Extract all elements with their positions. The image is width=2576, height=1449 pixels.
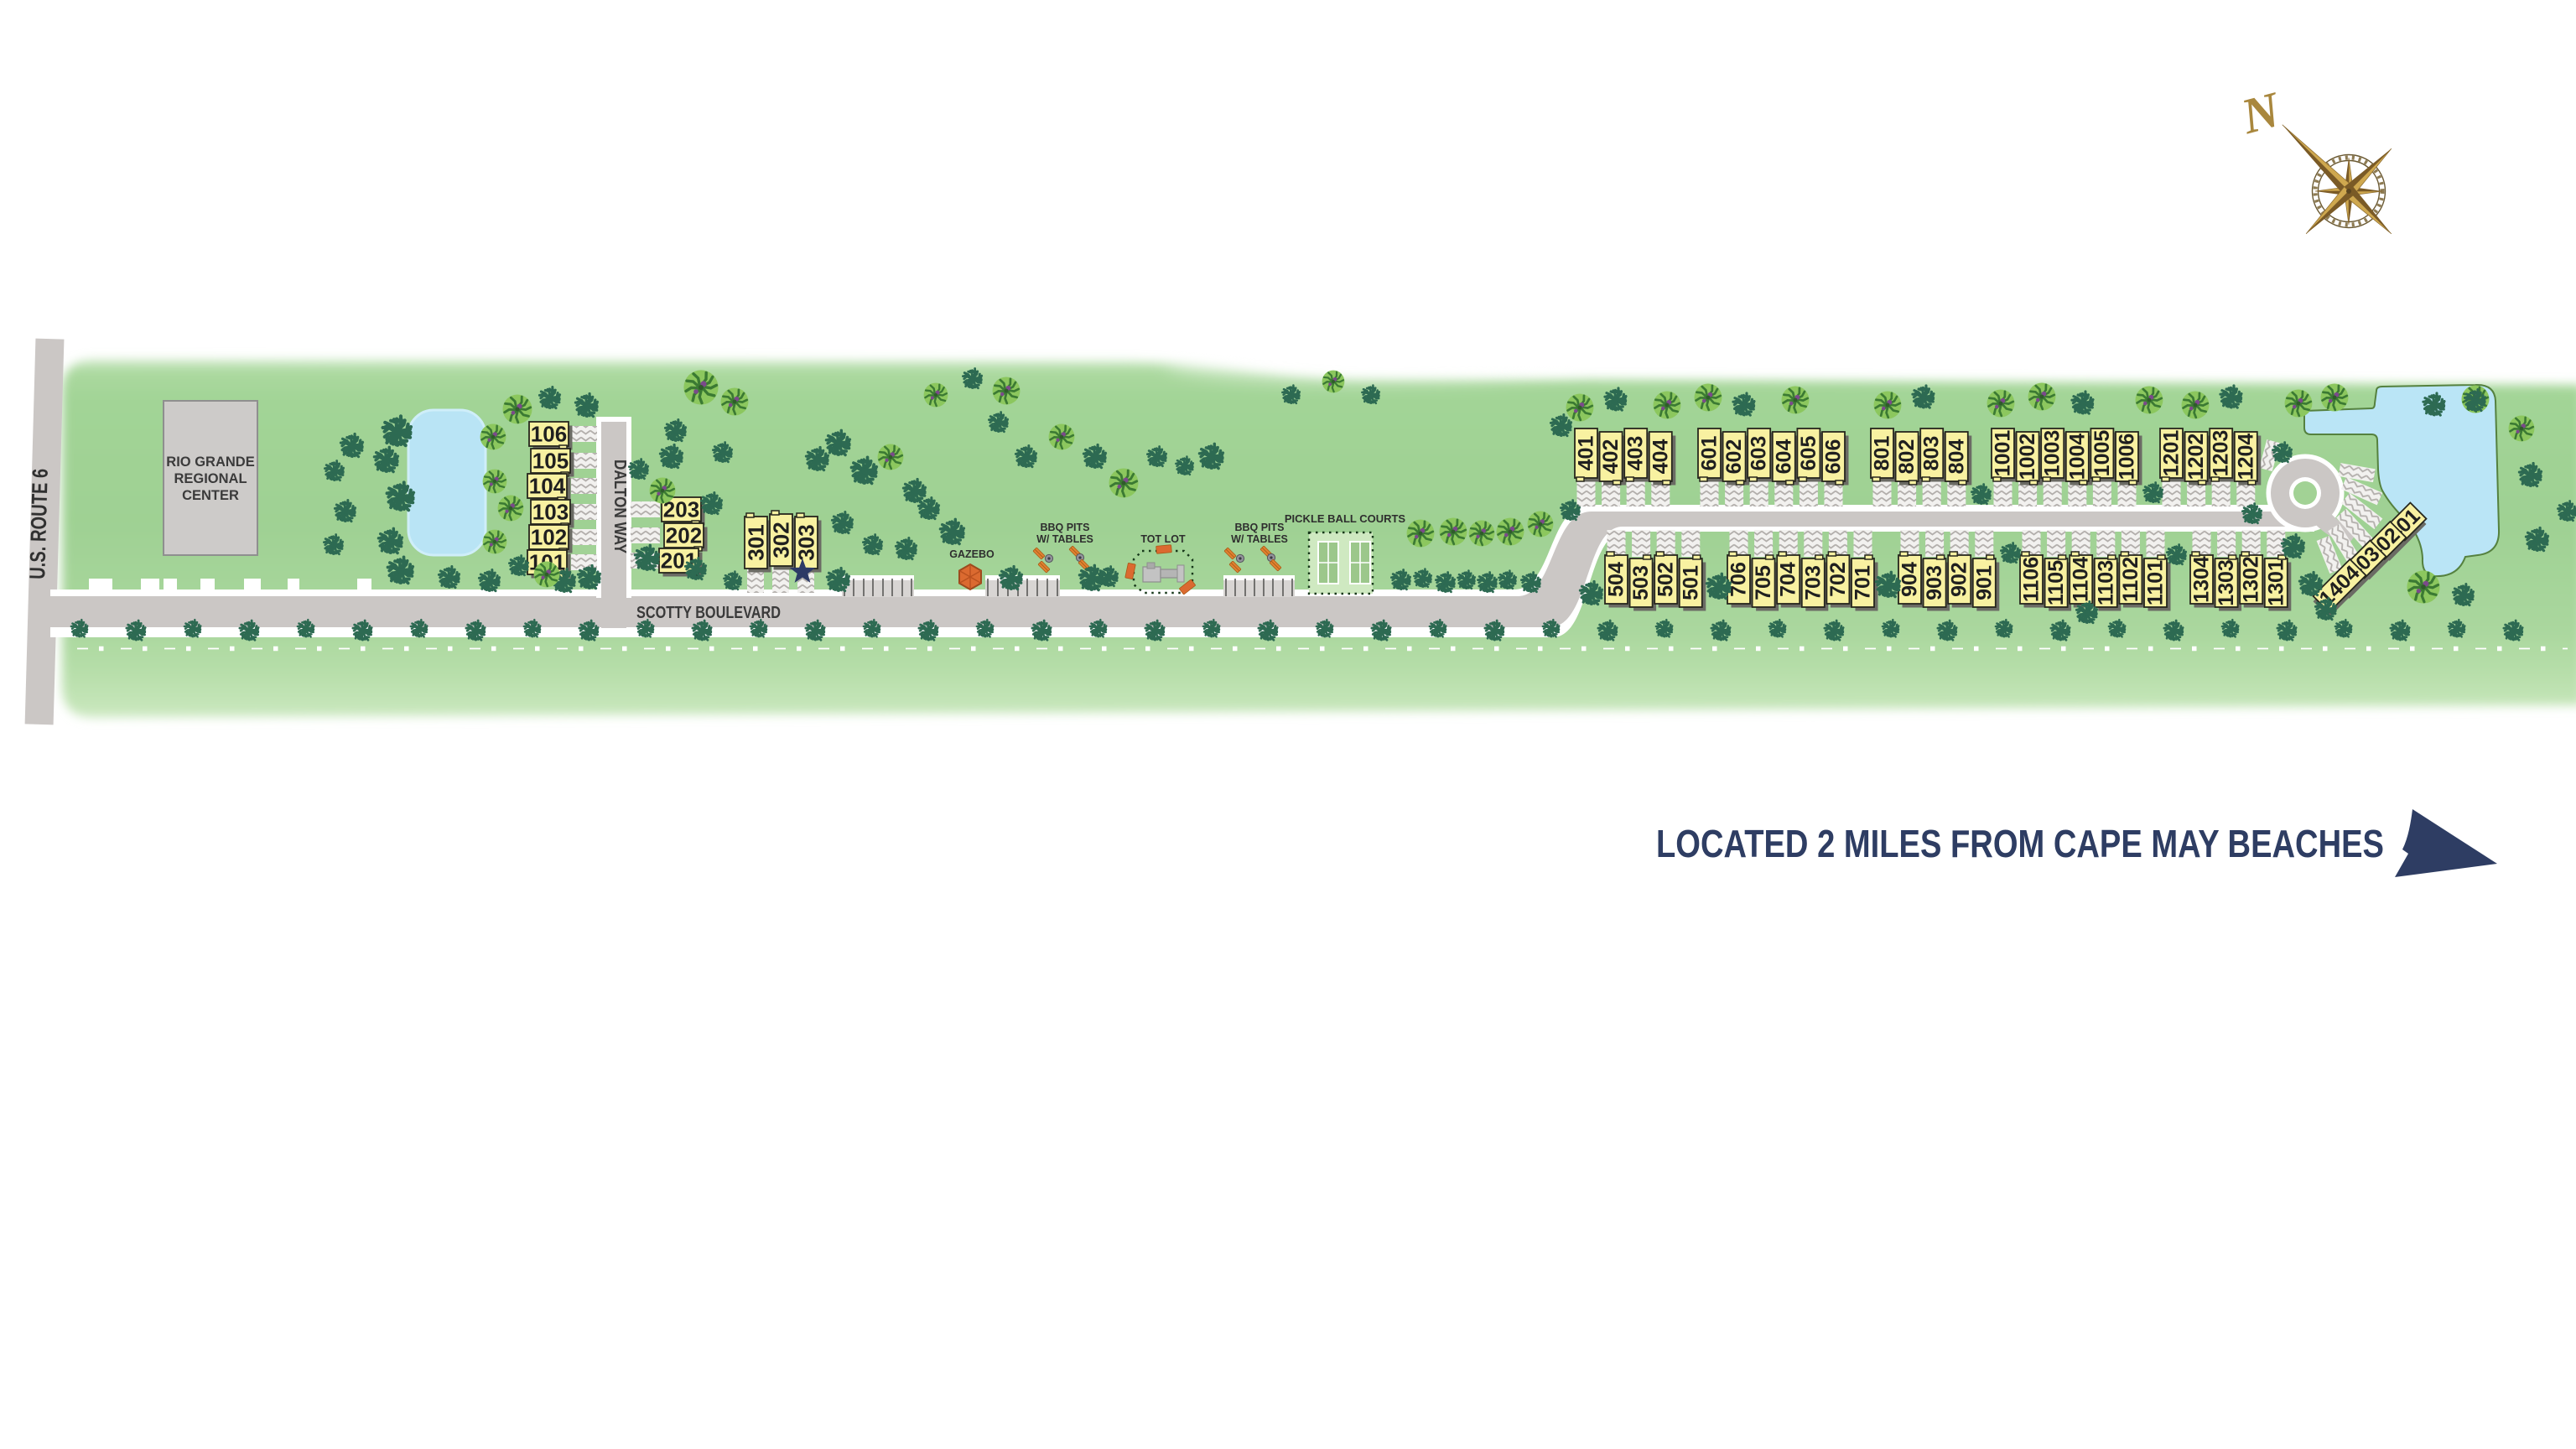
svg-text:802: 802 (1895, 439, 1919, 475)
svg-text:1001: 1001 (1992, 430, 2015, 477)
svg-text:703: 703 (1801, 565, 1825, 600)
svg-text:606: 606 (1822, 439, 1846, 475)
svg-text:U.S. ROUTE 6: U.S. ROUTE 6 (24, 468, 53, 579)
svg-text:704: 704 (1777, 562, 1800, 597)
svg-text:CENTER: CENTER (182, 488, 239, 503)
svg-text:1203: 1203 (2210, 430, 2233, 477)
svg-text:1004: 1004 (2065, 434, 2089, 480)
svg-text:1105: 1105 (2044, 560, 2068, 605)
svg-text:1102: 1102 (2119, 557, 2142, 602)
svg-text:603: 603 (1748, 436, 1771, 471)
svg-text:1002: 1002 (2016, 434, 2039, 480)
svg-text:1106: 1106 (2020, 557, 2044, 602)
svg-text:902: 902 (1948, 562, 1971, 597)
svg-text:1103: 1103 (2094, 560, 2117, 605)
svg-text:202: 202 (666, 523, 702, 548)
svg-text:1303: 1303 (2215, 559, 2238, 606)
svg-text:1104: 1104 (2070, 557, 2093, 602)
svg-text:105: 105 (532, 449, 569, 474)
svg-text:GAZEBO: GAZEBO (949, 548, 995, 560)
svg-text:604: 604 (1772, 439, 1795, 475)
svg-text:103: 103 (532, 500, 569, 525)
svg-text:302: 302 (769, 522, 794, 558)
svg-text:RIO GRANDE: RIO GRANDE (166, 454, 254, 470)
svg-text:401: 401 (1575, 436, 1598, 471)
svg-text:1204: 1204 (2234, 434, 2257, 480)
svg-text:804: 804 (1945, 439, 1968, 475)
svg-text:1202: 1202 (2184, 434, 2208, 480)
svg-text:TOT LOT: TOT LOT (1140, 533, 1186, 545)
svg-text:602: 602 (1722, 439, 1746, 475)
svg-text:901: 901 (1972, 565, 1996, 600)
svg-text:903: 903 (1923, 565, 1946, 600)
svg-text:404: 404 (1649, 439, 1672, 475)
svg-text:504: 504 (1605, 562, 1628, 597)
svg-text:605: 605 (1797, 436, 1820, 471)
svg-text:702: 702 (1826, 562, 1850, 597)
svg-text:LOCATED 2 MILES FROM CAPE MAY: LOCATED 2 MILES FROM CAPE MAY BEACHES (1656, 822, 2384, 865)
svg-text:301: 301 (744, 524, 769, 560)
svg-text:501: 501 (1679, 565, 1702, 600)
svg-text:PICKLE BALL COURTS: PICKLE BALL COURTS (1285, 512, 1406, 525)
svg-text:1006: 1006 (2116, 434, 2139, 480)
svg-text:1302: 1302 (2240, 556, 2263, 603)
svg-text:303: 303 (794, 524, 819, 560)
svg-text:DALTON WAY: DALTON WAY (610, 460, 629, 554)
svg-text:403: 403 (1624, 436, 1648, 471)
svg-text:106: 106 (531, 422, 567, 447)
svg-text:1003: 1003 (2041, 430, 2064, 477)
svg-text:W/ TABLES: W/ TABLES (1231, 533, 1288, 545)
svg-text:503: 503 (1629, 565, 1653, 600)
svg-text:701: 701 (1851, 565, 1875, 600)
svg-text:SCOTTY BOULEVARD: SCOTTY BOULEVARD (636, 604, 781, 622)
svg-text:1101: 1101 (2144, 560, 2168, 605)
svg-text:W/ TABLES: W/ TABLES (1036, 533, 1093, 545)
svg-text:803: 803 (1920, 436, 1944, 471)
svg-text:1301: 1301 (2264, 559, 2288, 606)
svg-text:BBQ PITS: BBQ PITS (1234, 522, 1284, 533)
svg-text:705: 705 (1752, 565, 1775, 600)
svg-text:904: 904 (1898, 562, 1922, 597)
svg-text:REGIONAL: REGIONAL (174, 471, 247, 486)
svg-text:102: 102 (531, 525, 567, 550)
svg-text:601: 601 (1698, 436, 1722, 471)
svg-text:1304: 1304 (2190, 556, 2214, 603)
svg-text:BBQ PITS: BBQ PITS (1040, 522, 1089, 533)
svg-text:502: 502 (1654, 562, 1678, 597)
svg-text:104: 104 (529, 474, 566, 499)
svg-text:1201: 1201 (2160, 430, 2184, 477)
svg-text:801: 801 (1871, 436, 1894, 471)
svg-text:1005: 1005 (2090, 430, 2114, 477)
svg-text:402: 402 (1599, 439, 1623, 475)
